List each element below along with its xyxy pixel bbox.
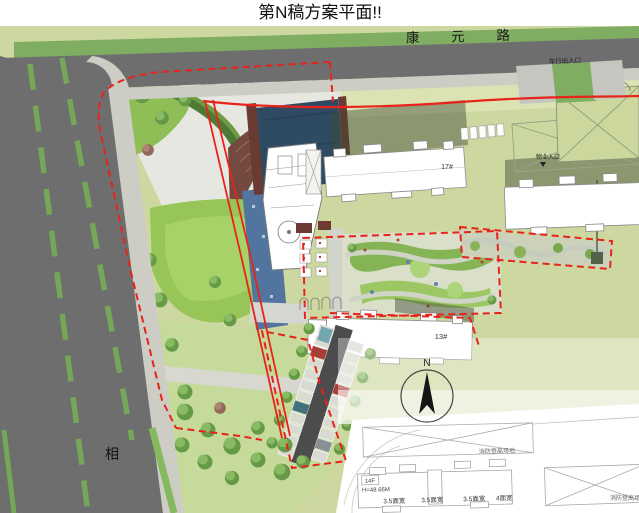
site-plan-canvas: 第N稿方案平面!! 康 元 路 相 车行出入口 物业入口 17# 13# N 消… bbox=[0, 0, 639, 513]
road-label-kangyuan: 康 元 路 bbox=[406, 26, 524, 45]
building-14f-floors: 14F bbox=[365, 479, 376, 485]
building-17-label: 17# bbox=[441, 164, 453, 171]
fire-area-label-bottom: 消防登高场地 bbox=[610, 494, 639, 502]
building-14f-height: H=48.66M bbox=[362, 487, 390, 494]
property-entrance-label: 物业入口 bbox=[536, 153, 560, 161]
footbridge bbox=[250, 302, 309, 324]
north-label: N bbox=[423, 358, 430, 369]
building-13-label: 13# bbox=[435, 332, 448, 341]
plan-title: 第N稿方案平面!! bbox=[258, 3, 382, 22]
road-label-west: 相 bbox=[105, 446, 119, 462]
vehicle-driveway-2 bbox=[590, 60, 626, 100]
bay-width-4: 4面宽 bbox=[496, 493, 513, 502]
